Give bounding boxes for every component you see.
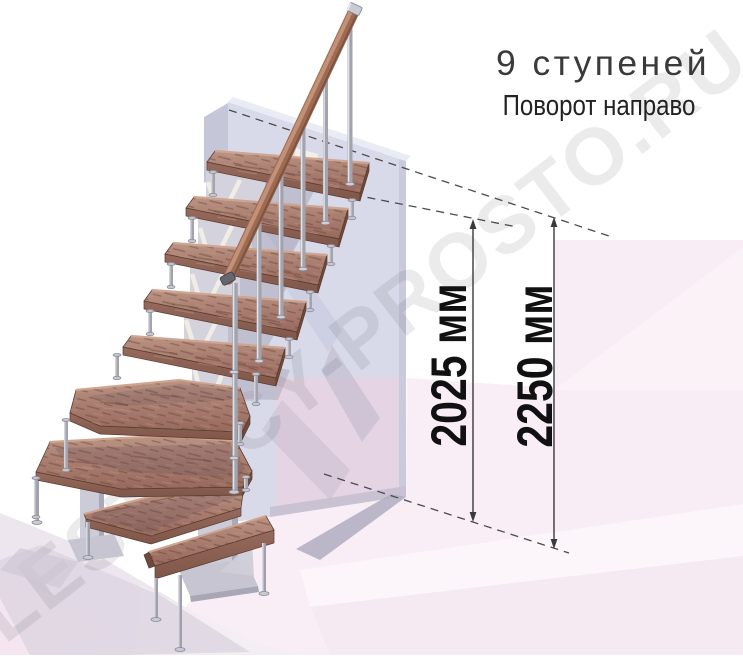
svg-text:2250 мм: 2250 мм (507, 284, 563, 447)
svg-text:Поворот направо: Поворот направо (503, 89, 696, 122)
svg-text:2025 мм: 2025 мм (421, 283, 477, 446)
svg-text:9 ступеней: 9 ступеней (496, 43, 710, 83)
